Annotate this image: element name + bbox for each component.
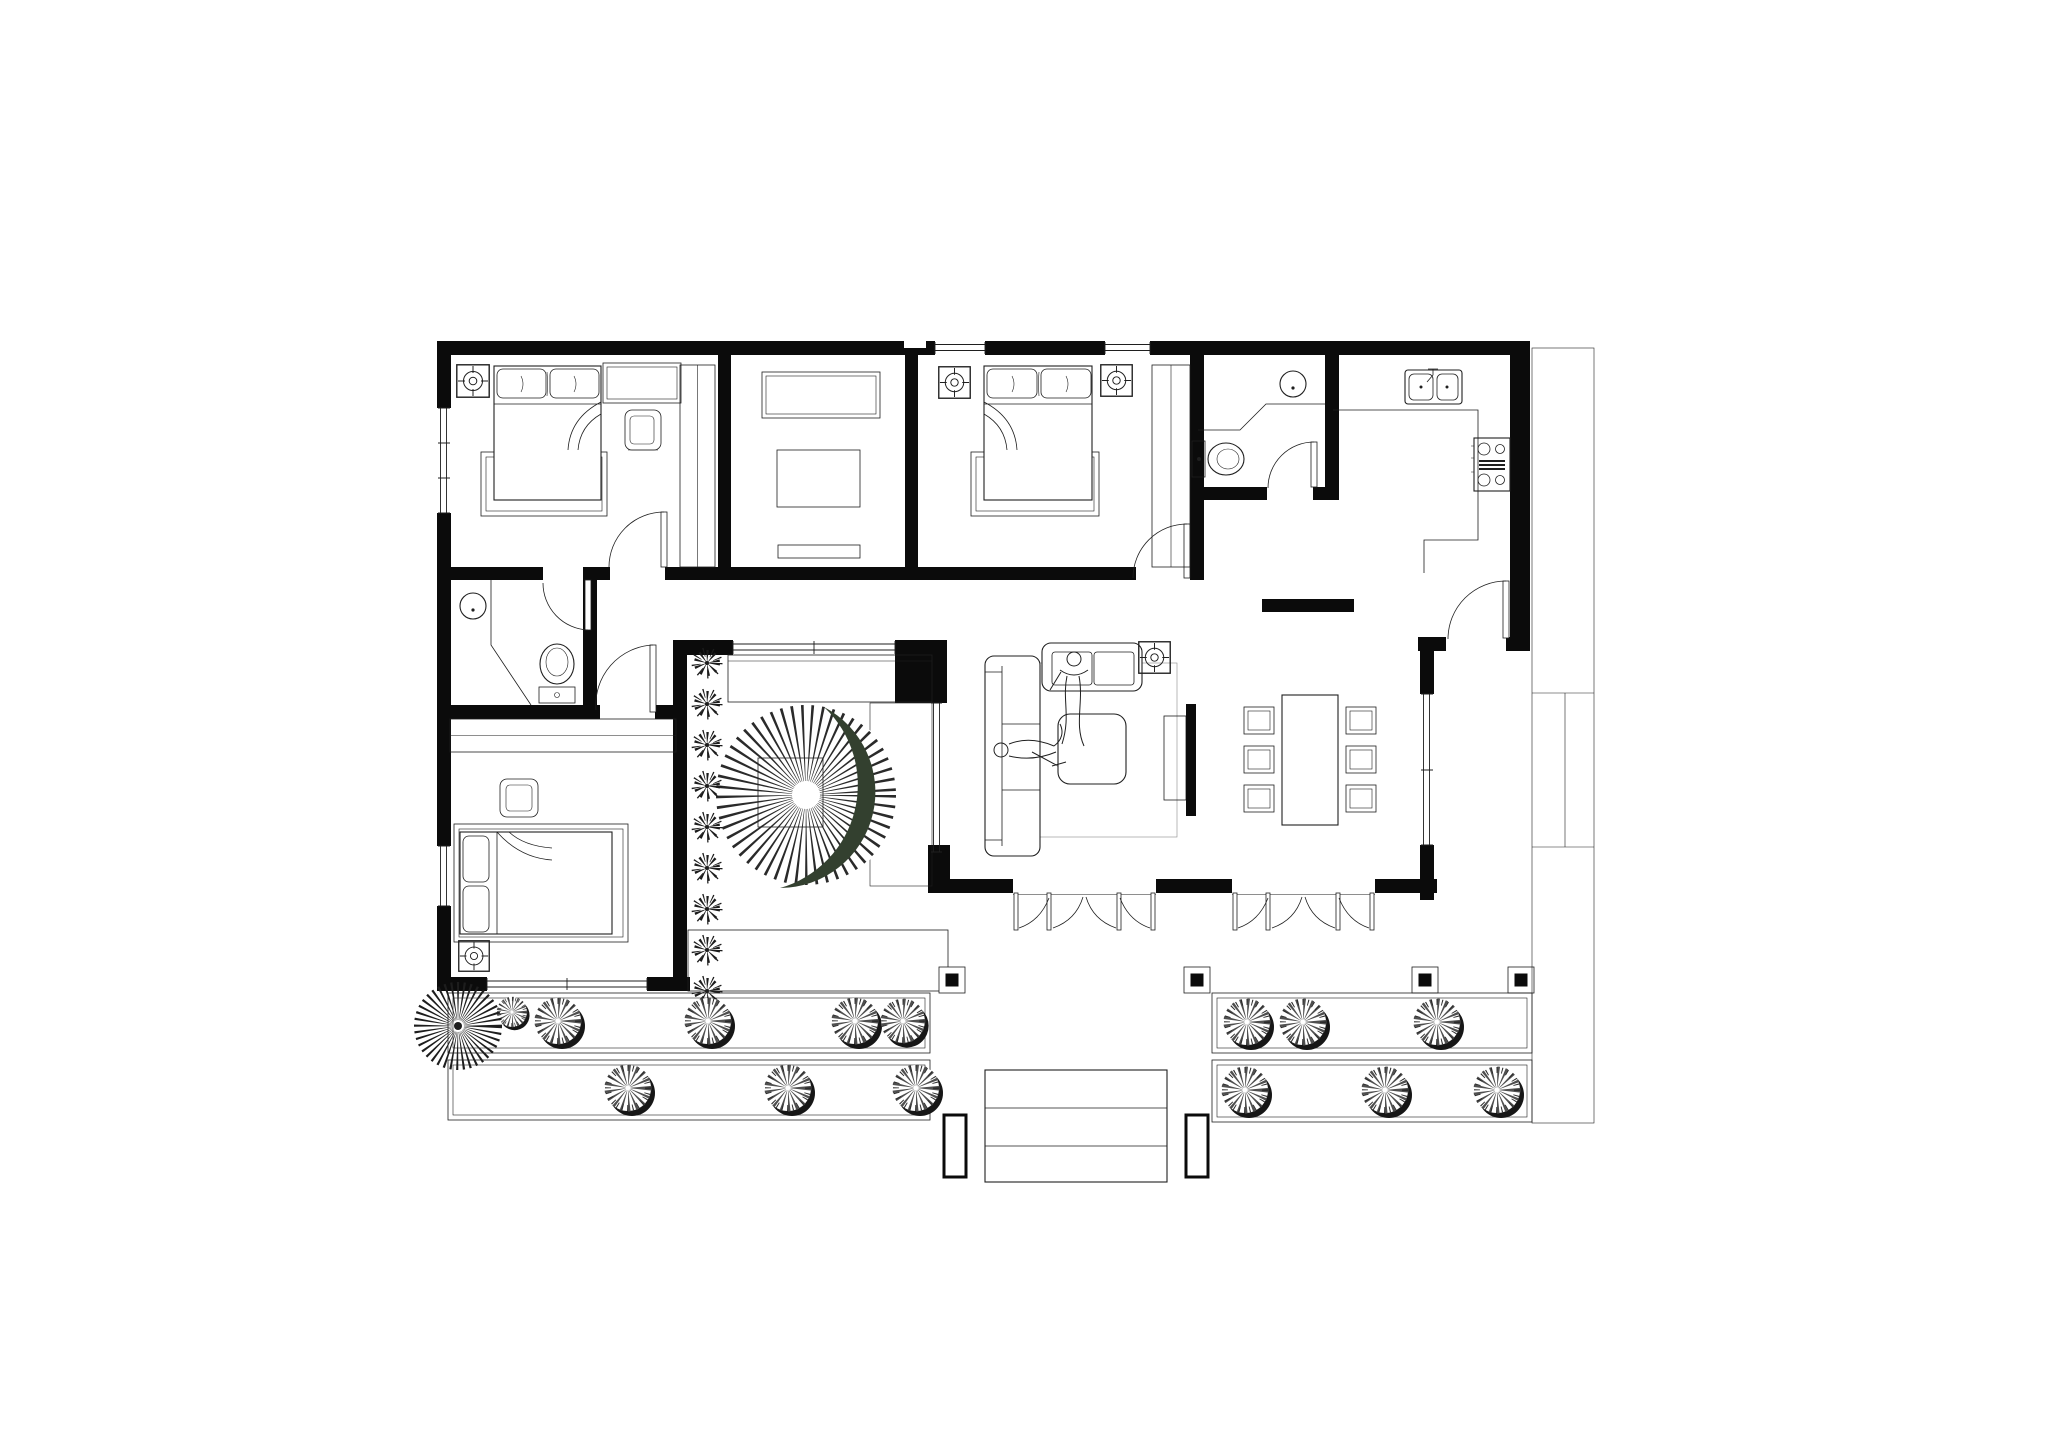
- wall-left-b: [437, 513, 451, 846]
- wall-mid-a: [451, 567, 543, 580]
- wall-south-b: [1156, 879, 1232, 893]
- wall-mid-c: [665, 567, 718, 580]
- wall-south-c: [1375, 879, 1437, 893]
- wall-top-notch: [904, 341, 926, 348]
- wall-top-a: [437, 341, 935, 355]
- wall-east-stub-b: [1506, 637, 1530, 651]
- floor-plan-canvas: [0, 0, 2048, 1449]
- wall-south-a: [944, 879, 1013, 893]
- wall-mid-b: [583, 567, 610, 580]
- wall-bath1-south-b: [1313, 487, 1325, 500]
- wall-study-south: [718, 567, 905, 580]
- floor-plan-page: [0, 0, 2048, 1449]
- wall-freestanding: [1262, 599, 1354, 612]
- wall-court-ne-block: [895, 640, 947, 703]
- column: [1508, 967, 1534, 993]
- wall-b2-left: [905, 355, 918, 580]
- wall-east: [1510, 341, 1530, 651]
- wall-bath1-right: [1325, 355, 1339, 500]
- column: [1184, 967, 1210, 993]
- sofa-loveseat: [1042, 643, 1142, 691]
- wall-study-left: [718, 355, 731, 567]
- wall-corr-south-b: [655, 705, 676, 719]
- wall-corr-south-a: [437, 705, 600, 719]
- wall-left-a: [437, 341, 451, 408]
- wall-lr-east-a: [1420, 637, 1434, 694]
- wall-court-left: [673, 640, 687, 991]
- column: [939, 967, 965, 993]
- sofa-long: [985, 656, 1040, 856]
- wall-bath1-south-a: [1204, 487, 1267, 500]
- bed-double: [481, 366, 607, 516]
- wall-top-c: [1150, 341, 1530, 355]
- bed-double: [971, 366, 1099, 516]
- wall-court-top: [687, 640, 733, 655]
- wall-top-b: [985, 341, 1105, 355]
- bed-mattress: [984, 366, 1092, 500]
- square-frame: [758, 758, 823, 827]
- column: [1412, 967, 1438, 993]
- bed-double: [454, 824, 628, 942]
- wall-b2-south-a: [905, 567, 1136, 580]
- large-tree-icon: [433, 1001, 483, 1051]
- wall-b3-south-a: [437, 977, 487, 991]
- bed-mattress: [460, 832, 612, 934]
- tv-panel: [1186, 704, 1196, 816]
